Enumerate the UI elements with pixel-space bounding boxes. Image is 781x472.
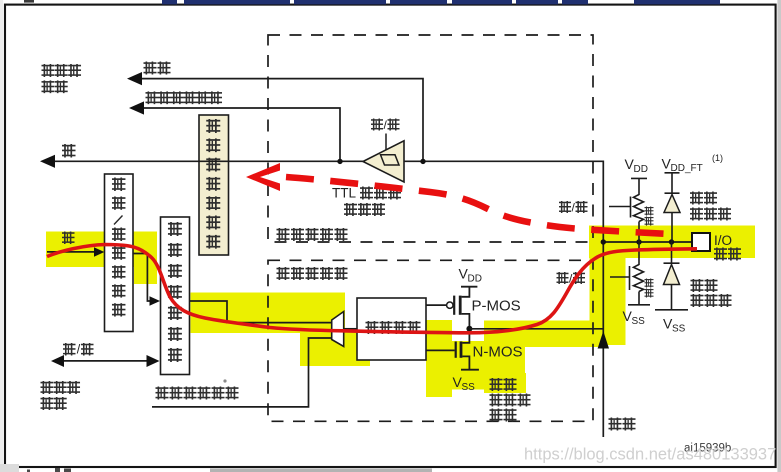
svg-text:DD_FT: DD_FT bbox=[671, 163, 703, 174]
svg-text:N-MOS: N-MOS bbox=[473, 344, 523, 361]
svg-text:(1): (1) bbox=[712, 153, 723, 163]
svg-text:SS: SS bbox=[632, 316, 646, 327]
svg-text:SS: SS bbox=[672, 324, 686, 335]
svg-text:TTL: TTL bbox=[332, 186, 356, 201]
svg-text:SS: SS bbox=[462, 382, 476, 393]
svg-text:P-MOS: P-MOS bbox=[472, 298, 521, 315]
svg-text:/: / bbox=[77, 343, 81, 357]
svg-text:https://blog.csdn.net/as480133: https://blog.csdn.net/as480133937 bbox=[524, 446, 776, 464]
svg-text:DD: DD bbox=[634, 164, 648, 175]
svg-text:I/O: I/O bbox=[714, 233, 732, 248]
svg-text:DD: DD bbox=[468, 274, 482, 285]
